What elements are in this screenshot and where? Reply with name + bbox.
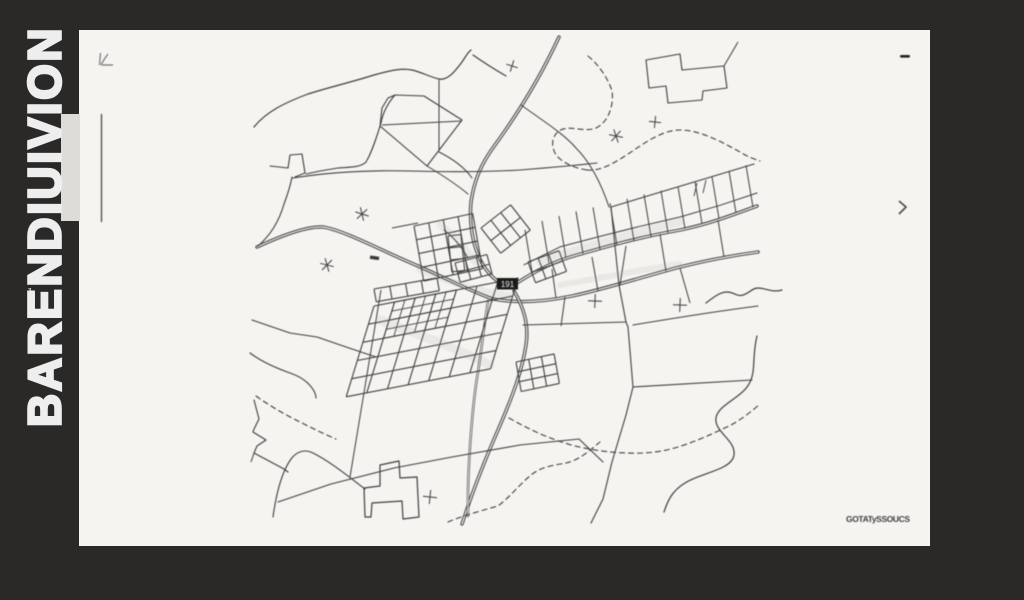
svg-text:GOTATySSOUCS: GOTATySSOUCS — [846, 514, 910, 524]
svg-text:191: 191 — [501, 280, 515, 289]
